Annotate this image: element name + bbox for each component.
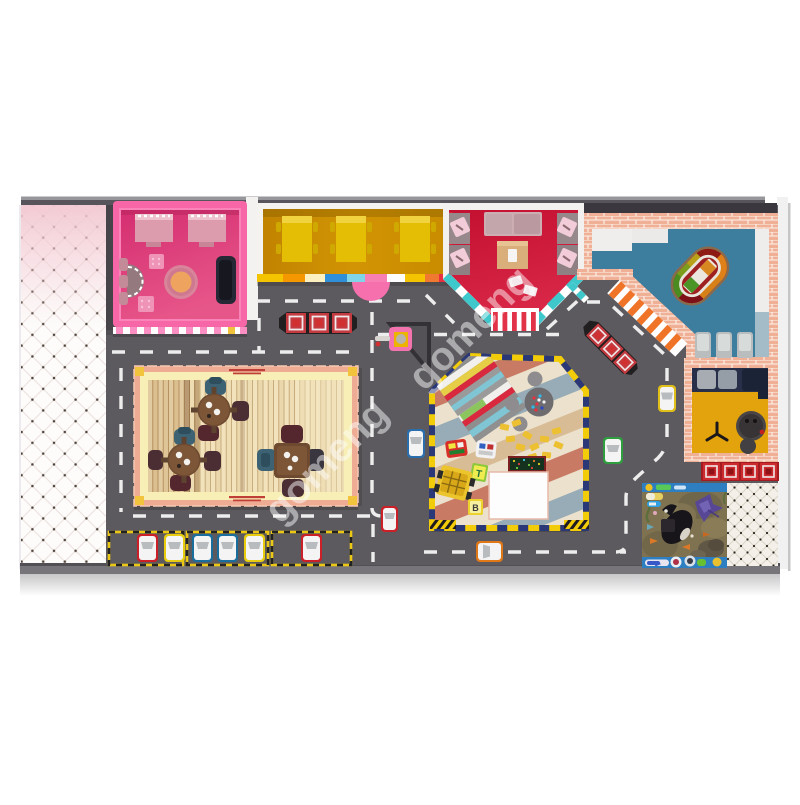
svg-text:B: B (472, 503, 479, 513)
